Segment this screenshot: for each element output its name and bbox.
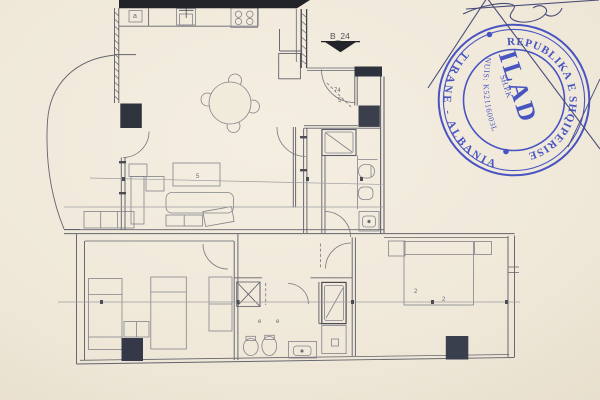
svg-text:B_24: B_24 (330, 31, 350, 41)
svg-text:74: 74 (334, 88, 341, 94)
svg-text:a: a (133, 13, 137, 20)
